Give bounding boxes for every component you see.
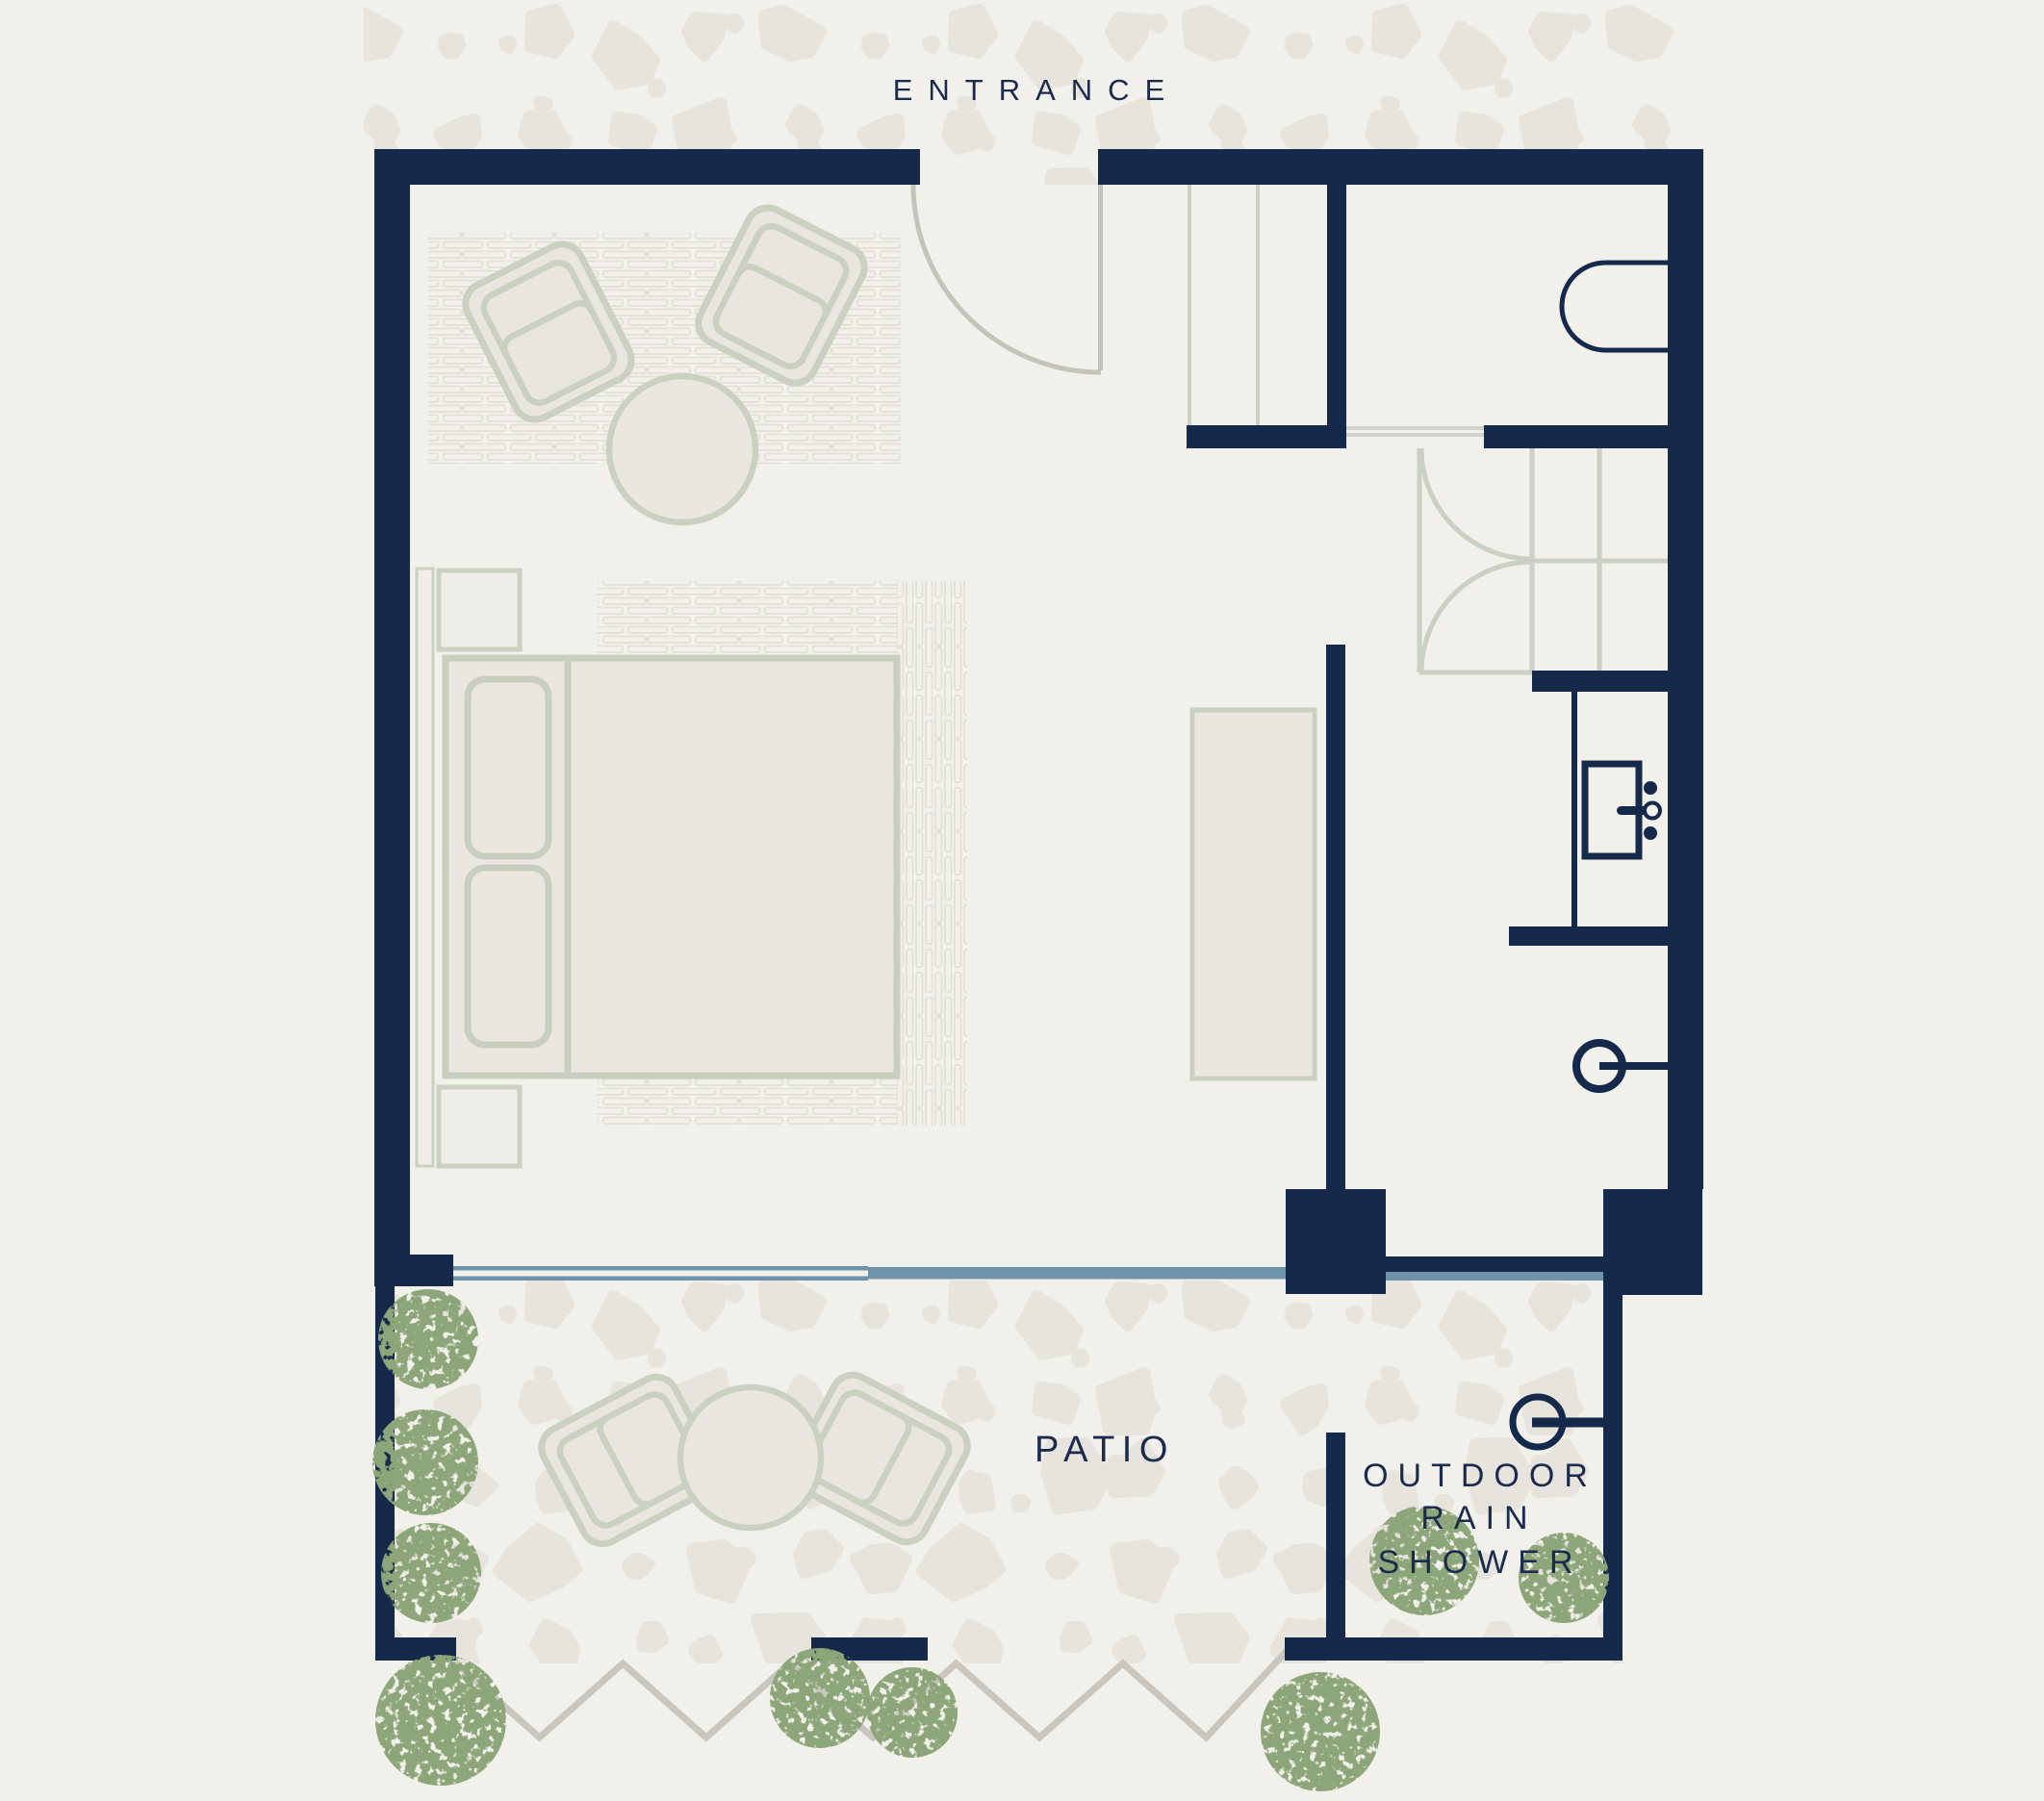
svg-text:ENTRANCE: ENTRANCE [893,73,1181,107]
svg-text:PATIO: PATIO [1035,1430,1175,1470]
svg-text:SHOWER: SHOWER [1378,1544,1583,1581]
svg-text:RAIN: RAIN [1420,1500,1537,1536]
svg-text:OUTDOOR: OUTDOOR [1363,1458,1597,1494]
